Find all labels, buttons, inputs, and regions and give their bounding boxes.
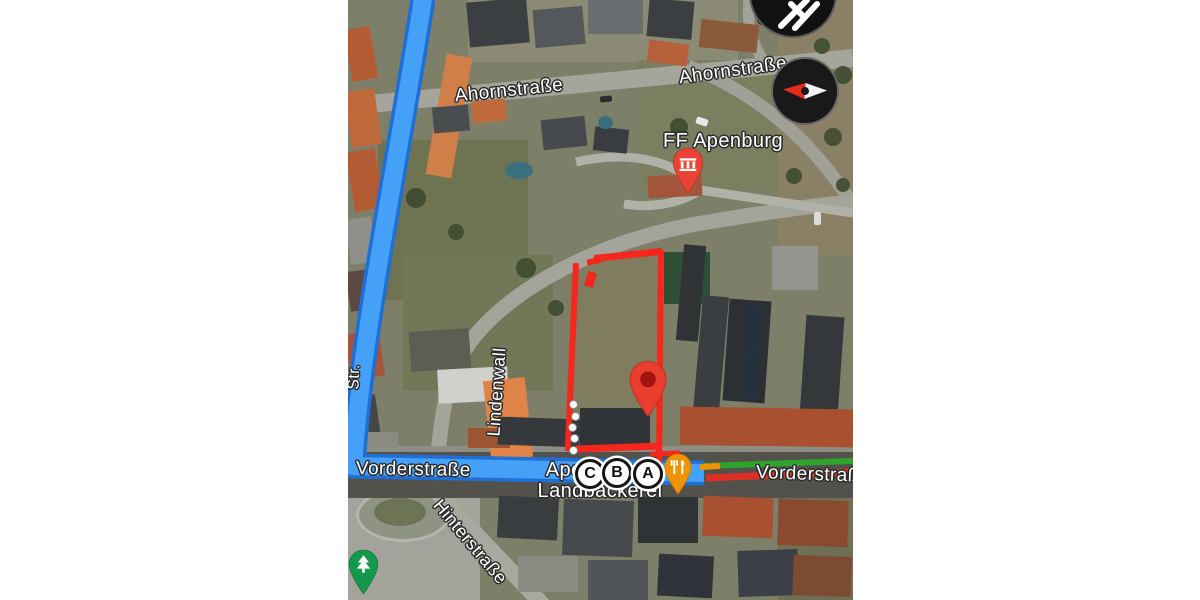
screenshot: Badeler Str Str. Ahornstraße Ahornstraße…	[0, 0, 1200, 600]
route-dot	[571, 412, 580, 421]
left-margin	[0, 0, 348, 600]
right-margin	[853, 0, 1200, 600]
transit-stop-icon-c[interactable]: C	[575, 459, 605, 489]
destination-pin[interactable]	[627, 360, 669, 418]
street-label-vorderstrasse-right: Vorderstraße	[756, 462, 853, 488]
route-dot	[570, 434, 579, 443]
route-dot	[569, 446, 578, 455]
street-label-vorderstrasse-left: Vorderstraße	[356, 458, 471, 482]
transit-stop-letter: A	[642, 465, 654, 483]
tree-marker[interactable]	[348, 549, 380, 595]
street-label-badeler-partial: Str.	[348, 364, 364, 390]
restaurant-marker[interactable]	[663, 453, 693, 495]
route-dot	[569, 400, 578, 409]
compass-icon[interactable]	[771, 57, 839, 125]
transit-stop-letter: C	[584, 465, 596, 483]
transit-stop-icon-b[interactable]: B	[602, 458, 632, 488]
transit-stop-icon-a[interactable]: A	[633, 459, 663, 489]
route-dot	[568, 423, 577, 432]
activity-icon[interactable]	[749, 0, 837, 38]
building-icon	[680, 158, 697, 171]
satellite-map[interactable]: Badeler Str Str. Ahornstraße Ahornstraße…	[348, 0, 853, 600]
transit-stop-letter: B	[611, 464, 623, 482]
fire-station-marker[interactable]	[671, 147, 705, 194]
